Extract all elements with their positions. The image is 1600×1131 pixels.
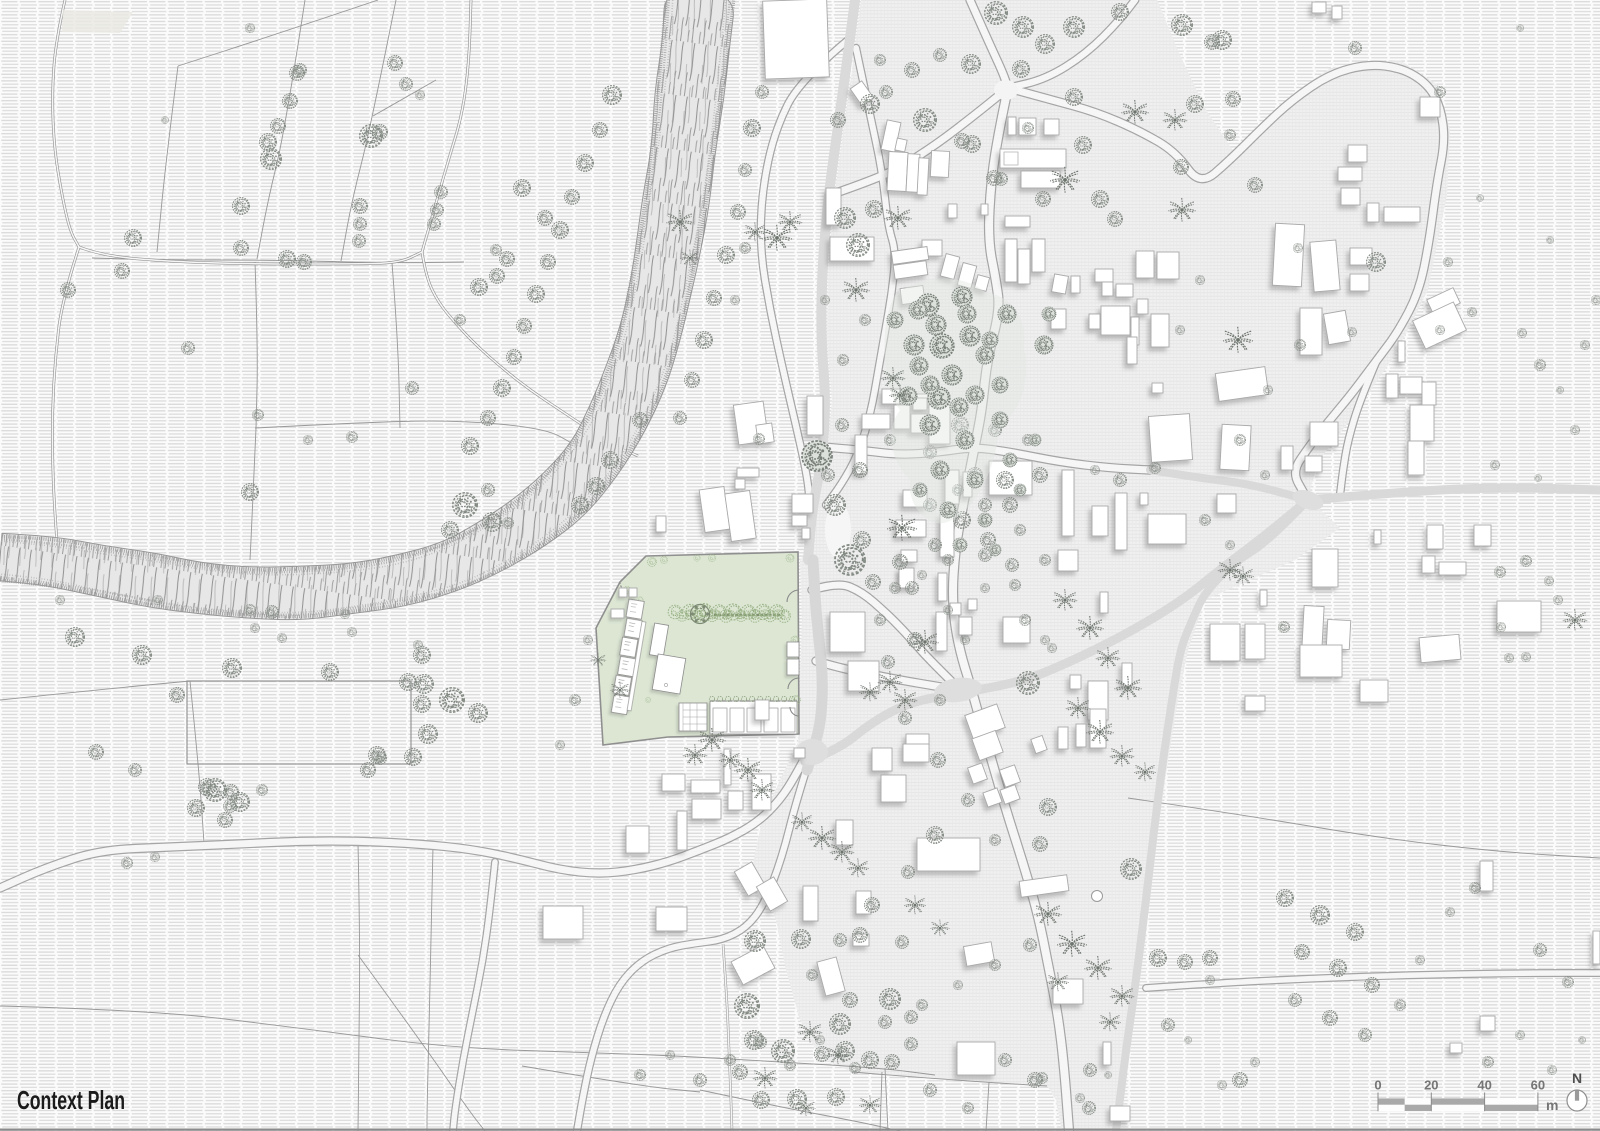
svg-text:m: m <box>1546 1097 1558 1113</box>
svg-text:Context Plan: Context Plan <box>17 1085 125 1115</box>
svg-text:0: 0 <box>1374 1078 1381 1093</box>
svg-text:40: 40 <box>1477 1078 1491 1093</box>
svg-text:60: 60 <box>1531 1078 1545 1093</box>
svg-text:20: 20 <box>1424 1078 1438 1093</box>
svg-text:N: N <box>1572 1070 1582 1086</box>
